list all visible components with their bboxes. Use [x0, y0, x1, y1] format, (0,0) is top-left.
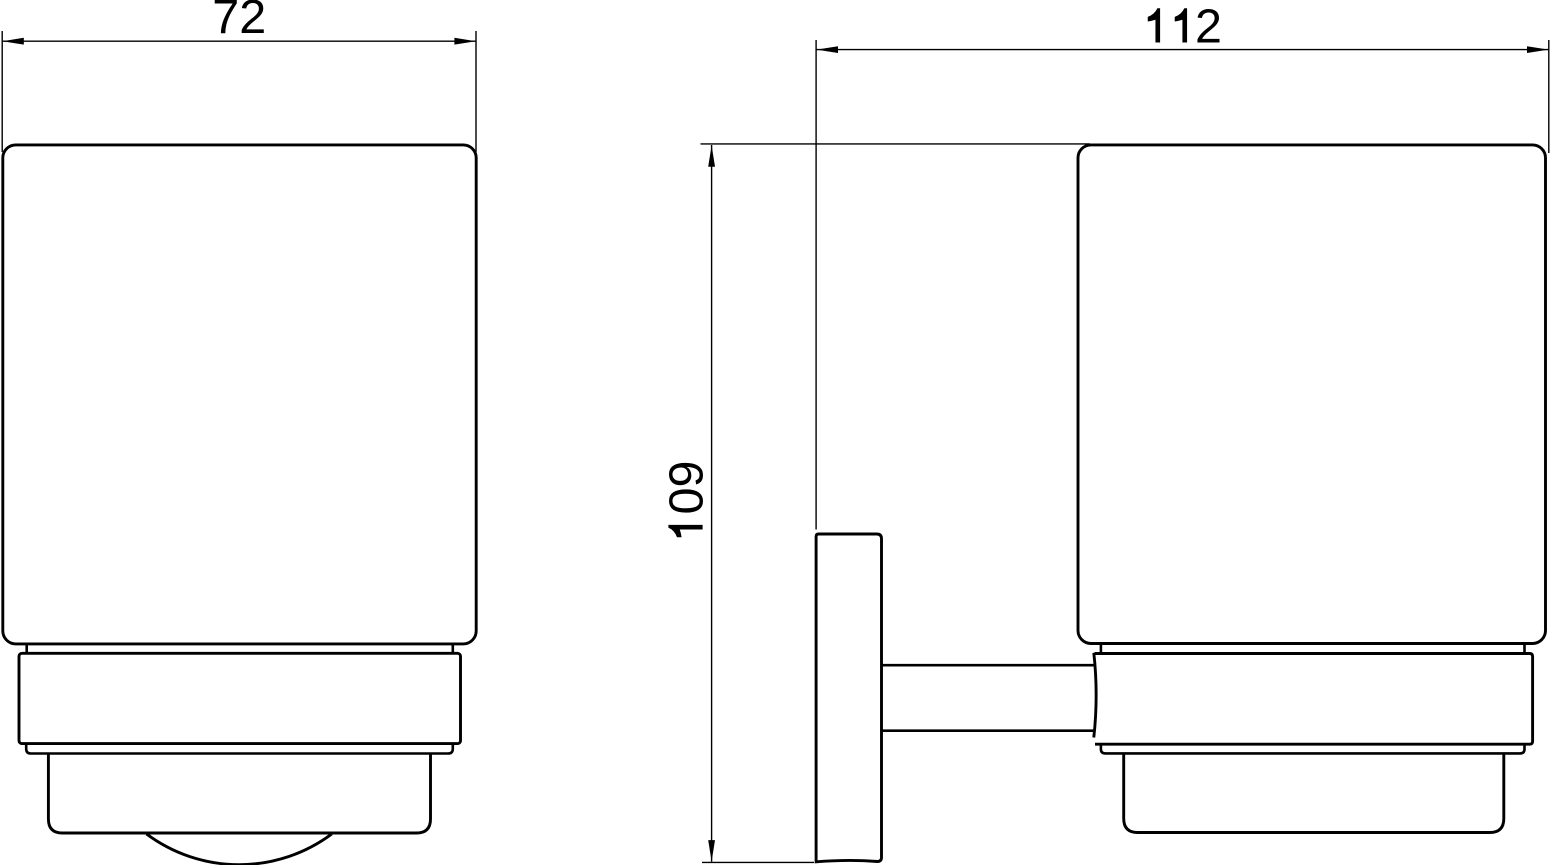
- svg-text:09: 09: [660, 461, 714, 515]
- svg-text:2: 2: [1195, 0, 1222, 54]
- svg-text:72: 72: [212, 0, 266, 44]
